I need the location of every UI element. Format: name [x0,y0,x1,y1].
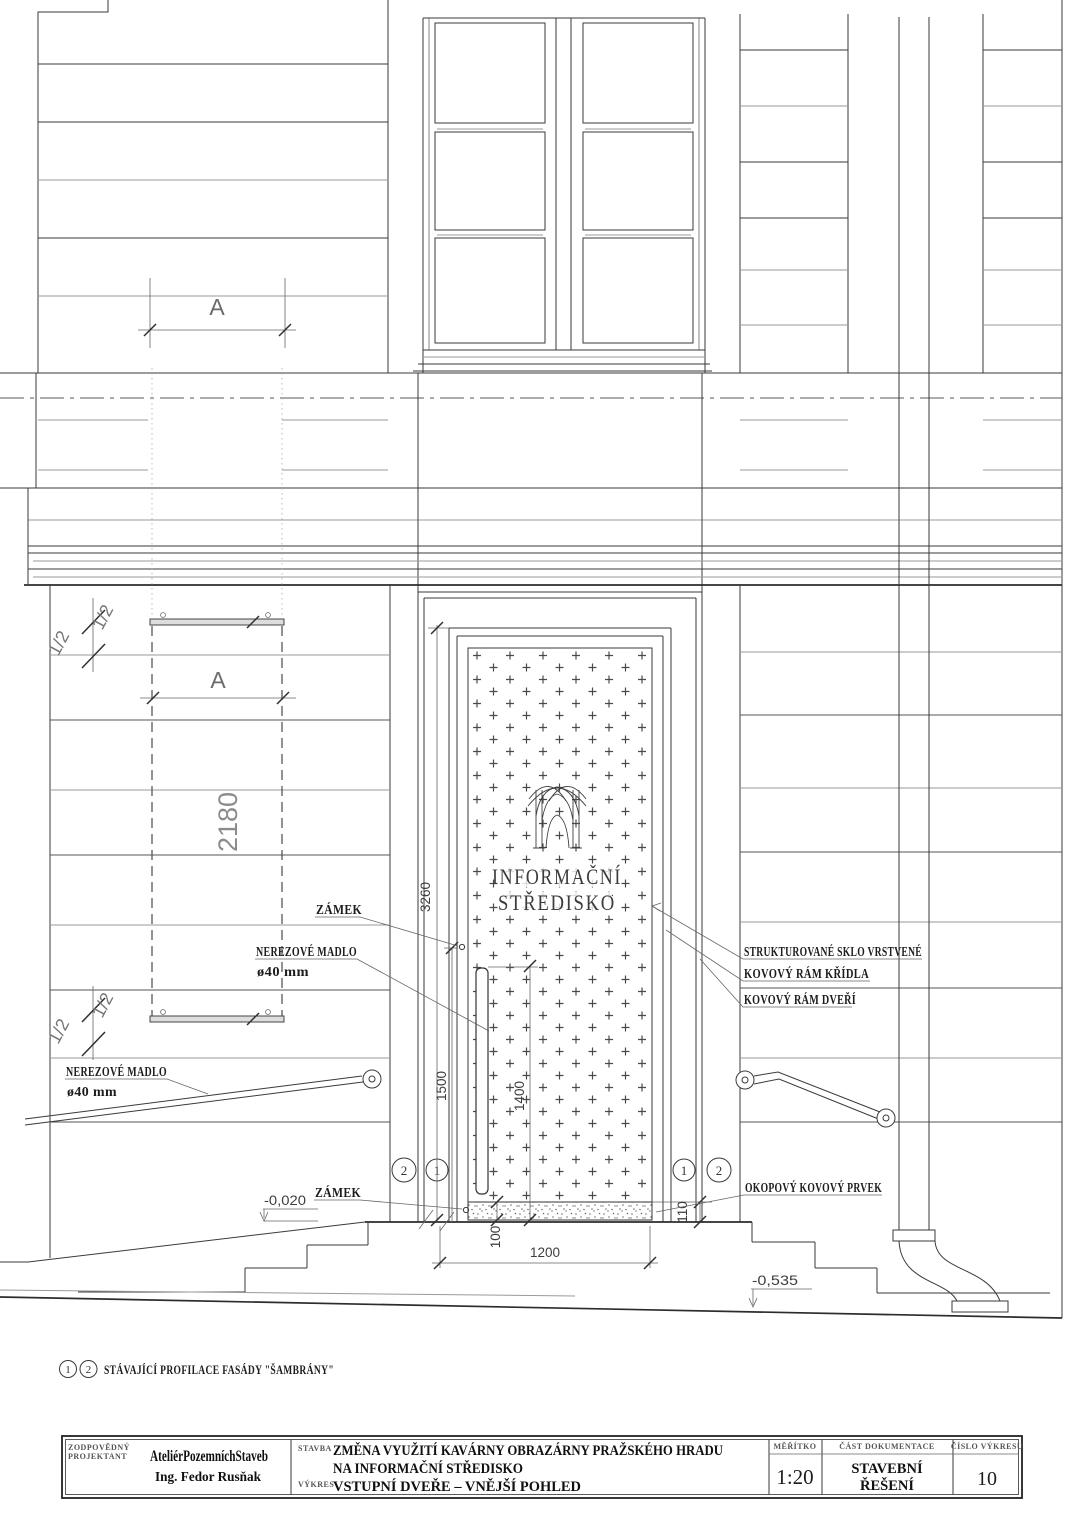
detail-bar-bottom [150,1016,284,1022]
title-block: ZODPOVĚDNÝ PROJEKTANT AteliérPozemníchSt… [62,1436,1023,1498]
dim-kick-height: 100 [488,1226,503,1249]
footnote-ref-1: 1 [65,1364,71,1376]
studio-name: AteliérPozemníchStaveb [150,1448,268,1465]
marker-right-inner: 1 [681,1163,688,1178]
titleblock-part: ČÁST DOKUMENTACE STAVEBNÍ ŘEŠENÍ [839,1441,935,1494]
titleblock-responsible: ZODPOVĚDNÝ PROJEKTANT AteliérPozemníchSt… [68,1442,268,1485]
level-terrain-value: -0,535 [752,1273,798,1288]
label-leaf-frame: KOVOVÝ RÁM KŘÍDLA [744,966,869,981]
door-handle-bar [476,968,488,1194]
kick-plate [468,1202,652,1220]
facade-elevation-drawing: INFORMAČNÍ STŘEDISKO 2 1 1 2 2180 A [0,0,1080,1528]
ramp [0,1222,365,1262]
label-handle-line2: ø40 mm [257,964,309,979]
footnote-ref-2: 2 [86,1364,92,1376]
number-label: ČÍSLO VÝKRESU [951,1441,1023,1451]
level-terrain: -0,535 [749,1273,812,1307]
dim-door-width: 1200 [530,1245,560,1260]
label-handle-line1: NEREZOVÉ MADLO [256,944,357,959]
drawing-label: VÝKRES [298,1479,334,1489]
door-sign-line2: STŘEDISKO [498,890,616,915]
cornice [24,546,1062,585]
label-kick-plate: OKOPOVÝ KOVOVÝ PRVEK [745,1180,882,1195]
level-entry: -0,020 [260,1193,318,1221]
section-a-mid: A [210,667,226,693]
footnote: 1 2 STÁVAJÍCÍ PROFILACE FASÁDY "ŠAMBRÁNY… [60,1361,335,1378]
callout-lock-bottom: ZÁMEK [314,1185,462,1209]
architectural-drawing-sheet: INFORMAČNÍ STŘEDISKO 2 1 1 2 2180 A [0,0,1080,1528]
project-label: STAVBA [298,1444,332,1453]
rain-downpipe [893,17,1008,1312]
marker-right-outer: 2 [716,1163,723,1178]
label-glass: STRUKTUROVANÉ SKLO VRSTVENÉ [744,944,922,959]
detail-bar-top [150,619,284,625]
half-label: 1/2 [88,601,117,632]
responsible-label-1: ZODPOVĚDNÝ [68,1442,130,1452]
project-line1: ZMĚNA VYUŽITÍ KAVÁRNY OBRAZÁRNY PRAŽSKÉH… [333,1442,723,1459]
titleblock-scale: MĚŘÍTKO 1:20 [773,1441,816,1489]
dim-handle-height: 1400 [512,1081,527,1111]
engineer-name: Ing. Fedor Rusňak [155,1470,261,1485]
terrain-line [0,1297,1062,1318]
dim-lock-height: 1500 [434,1071,449,1101]
facade-band [0,373,1062,592]
drawing-title: VSTUPNÍ DVEŘE – VNĚJŠÍ POHLED [333,1478,581,1495]
half-marks-lower: 1/2 1/2 [44,986,117,1060]
upper-window [413,18,712,373]
number-value: 10 [977,1468,997,1490]
dim-frame-bottom: 110 [675,1201,690,1223]
marker-left-outer: 2 [401,1163,408,1178]
titleblock-number: ČÍSLO VÝKRESU 10 [951,1441,1023,1490]
structured-glass [469,649,651,1201]
dim-detail-height: 2180 [213,792,243,852]
upper-facade-right-walls [740,0,1062,1318]
callout-lock-top: ZÁMEK [315,902,458,946]
scale-value: 1:20 [776,1465,813,1489]
half-marks-upper: 1/2 1/2 [44,598,117,672]
label-rail-line1: NEREZOVÉ MADLO [66,1064,167,1079]
label-door-frame: KOVOVÝ RÁM DVEŘÍ [744,992,856,1007]
half-label: 1/2 [44,627,73,658]
section-a-top: A [138,278,296,348]
detail-a: 2180 A [140,368,296,1025]
part-line2: ŘEŠENÍ [860,1477,914,1494]
label-rail-line2: ø40 mm [67,1084,117,1099]
responsible-label-2: PROJEKTANT [68,1452,127,1461]
half-label: 1/2 [88,989,117,1020]
label-lock-bottom: ZÁMEK [315,1185,361,1200]
scale-label: MĚŘÍTKO [773,1441,816,1451]
callout-glass: STRUKTUROVANÉ SKLO VRSTVENÉ [652,903,922,959]
dim-door-height: 3260 [418,882,433,912]
door-sign-line1: INFORMAČNÍ [492,864,622,889]
window-panes [435,23,693,343]
callout-handle-door: NEREZOVÉ MADLO ø40 mm [255,944,489,1031]
section-a-top-letter: A [209,294,225,320]
callout-handle-rail: NEREZOVÉ MADLO ø40 mm [65,1064,208,1099]
handrail-right [736,1071,895,1127]
part-line1: STAVEBNÍ [851,1460,923,1477]
half-label: 1/2 [44,1015,73,1046]
footnote-text: STÁVAJÍCÍ PROFILACE FASÁDY "ŠAMBRÁNY" [104,1362,334,1377]
project-line2: NA INFORMAČNÍ STŘEDISKO [333,1460,523,1477]
part-label: ČÁST DOKUMENTACE [839,1441,935,1451]
titleblock-project: STAVBA ZMĚNA VYUŽITÍ KAVÁRNY OBRAZÁRNY P… [298,1442,723,1495]
downpipe-shoe [952,1301,1008,1312]
lock-cylinder-top [459,944,464,949]
level-entry-value: -0,020 [264,1193,306,1208]
label-lock-top: ZÁMEK [316,902,362,917]
